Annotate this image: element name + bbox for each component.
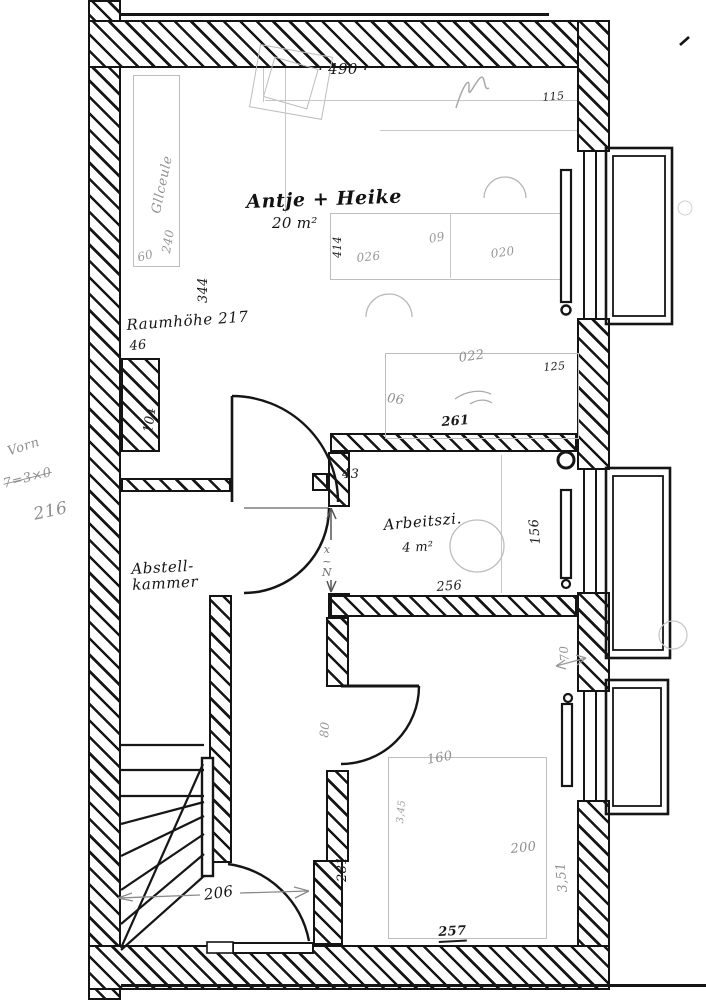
door-bottom-room (341, 686, 419, 764)
dim-80: 80 (318, 721, 332, 738)
pencil-scribble-top-right (456, 77, 489, 108)
staircase (121, 745, 204, 950)
floor-plan-scan: · 490 ·115Antje + Heike20 m²41409026020G… (0, 0, 706, 1000)
dim-256: 256 (436, 579, 463, 595)
room-arbeit-area: 4 m² (402, 540, 434, 555)
door-abstellkammer (244, 508, 329, 593)
dim-06: 06 (386, 392, 405, 408)
dim-156: 156 (528, 518, 544, 545)
note-vorn-3: 216 (32, 499, 69, 524)
pencil-halfcircle-top-room (484, 177, 526, 198)
dim-414: 414 (332, 236, 344, 258)
dim-206: 206 (203, 884, 234, 904)
dim-70: 70 (558, 645, 572, 662)
room-arbeit-name: Arbeitszi. (383, 511, 463, 534)
dim-490: · 490 · (318, 62, 368, 78)
pencil-faint-circle-1 (659, 621, 687, 649)
note-raumhoehe: Raumhöhe 217 (126, 309, 249, 333)
window-bay-top (561, 148, 672, 324)
wall-arbeitszi-bottom (330, 595, 577, 617)
dim-261: 261 (441, 414, 470, 430)
pencil-guide-h2 (380, 130, 577, 131)
wall-exterior-right-1 (577, 20, 610, 152)
wall-exterior-left (88, 0, 121, 1000)
window-bay-middle (558, 452, 670, 658)
wall-chimney-pillar (121, 358, 160, 452)
ink-tick-top-right (680, 37, 689, 45)
room-antje-name: Antje + Heike (246, 187, 402, 213)
wall-exterior-right-2 (577, 318, 610, 470)
wall-arbeitszi-notch (312, 473, 328, 491)
dim-281: 281 (336, 856, 350, 882)
room-abstell: Abstell- kammer (131, 559, 199, 594)
pencil-faint-circle-2 (678, 201, 692, 215)
dim-125: 125 (543, 360, 566, 374)
wall-bottom-outer-line (121, 984, 706, 987)
dim-46: 46 (129, 339, 147, 354)
pencil-circle-arbeitszi (450, 520, 504, 572)
pencil-beds-divider (450, 213, 451, 278)
wall-exterior-right-3 (577, 592, 610, 692)
room-antje-area: 20 m² (272, 216, 318, 232)
wall-bedroom-left-b (326, 770, 349, 862)
dim-026-bed: 026 (356, 250, 381, 265)
pencil-guide-h1 (265, 100, 577, 101)
pencil-halfcircle-below-beds (366, 294, 412, 317)
dim-43: 43 (342, 468, 359, 482)
note-x-n: x ~ N (322, 544, 332, 579)
note-vorn-2: 7=3×0 (2, 466, 53, 491)
dim-344: 344 (197, 277, 211, 303)
pencil-guide-v1 (263, 68, 264, 102)
pencil-tilted-sketch-inner (263, 56, 319, 109)
dim-115: 115 (542, 90, 565, 104)
wall-top-outer-line (121, 13, 549, 16)
wall-bedroom-left-a (326, 617, 349, 687)
window-bay-bottom (562, 680, 668, 814)
dim-351: 3,51 (554, 862, 570, 893)
pipe-circle (558, 452, 574, 468)
pencil-tilted-sketch (249, 44, 333, 120)
wall-abstell-top (121, 478, 231, 492)
wall-corridor-left (209, 595, 232, 863)
dim-200: 200 (510, 840, 537, 856)
dim-345: 3,45 (396, 800, 409, 824)
note-vorn-1: Vorn (6, 436, 42, 459)
dim-257: 257 (438, 925, 467, 943)
dim-09-bed: 09 (428, 230, 446, 245)
pencil-guide-v3 (501, 455, 502, 593)
